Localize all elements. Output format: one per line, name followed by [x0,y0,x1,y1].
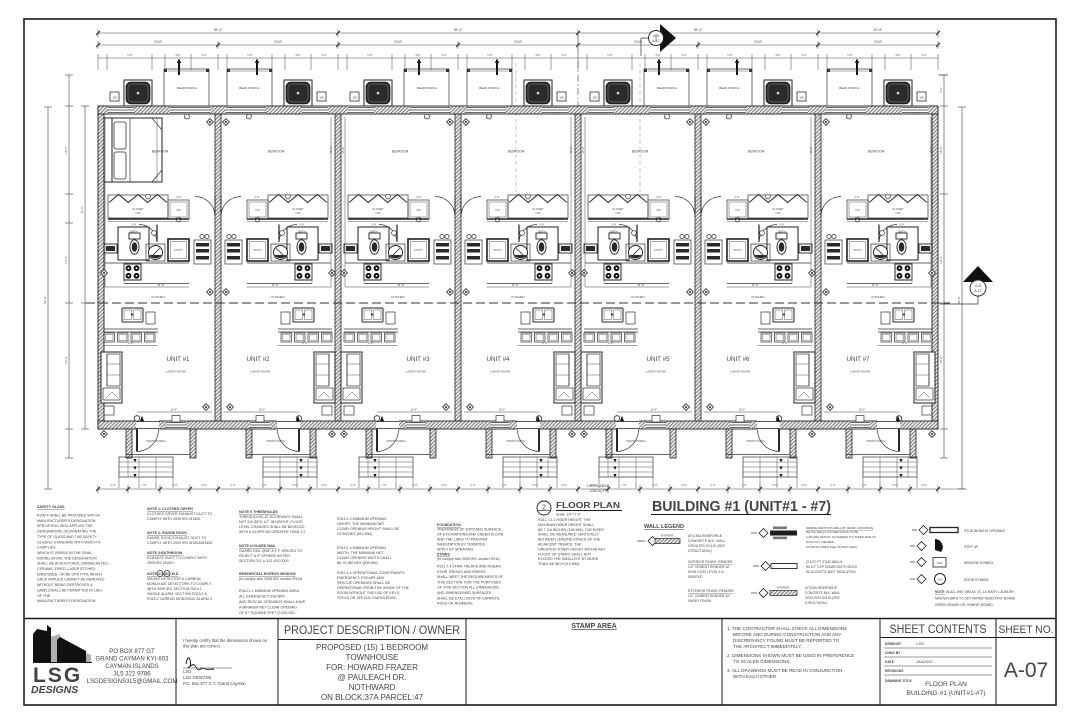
svg-text:A MINIMUM NET CLEAR OPENING: A MINIMUM NET CLEAR OPENING [239,606,297,610]
svg-text:BLOCK WALLS POURED SOLID TO BE: BLOCK WALLS POURED SOLID TO BE [806,530,858,534]
svg-text:REJECT A 4" SPHERE AS PER: REJECT A 4" SPHERE AS PER [239,554,290,558]
svg-text:CLOTHES DRYER EXHAUST DUCT TO: CLOTHES DRYER EXHAUST DUCT TO [147,512,212,516]
svg-text:SHALL BE ACID ETCHED, SANDBLAS: SHALL BE ACID ETCHED, SANDBLASTED, [37,562,109,566]
svg-text:19'-8": 19'-8" [514,40,522,44]
svg-text:BEDROOM: BEDROOM [508,150,525,154]
svg-text:2'-6": 2'-6" [735,196,740,199]
svg-text:THIS SECTION. FOR THE PURPOSES: THIS SECTION. FOR THE PURPOSES [437,580,501,584]
svg-text:WALL LEGEND: WALL LEGEND [644,524,684,530]
svg-text:11'-6": 11'-6" [872,283,879,287]
svg-text:LIVING ROOM: LIVING ROOM [730,370,751,374]
svg-text:5'-8": 5'-8" [780,224,785,227]
svg-text:R311.7.4.1 RISER HEIGHT. THE: R311.7.4.1 RISER HEIGHT. THE [538,518,591,522]
svg-text:RANGE HOOD EXHAUST DUCT TO: RANGE HOOD EXHAUST DUCT TO [147,536,206,540]
svg-text:24 INCHES (610 MM).: 24 INCHES (610 MM). [337,532,373,536]
svg-text:4'-4": 4'-4" [201,483,206,487]
svg-text:(4")CMU REINFORCE: (4")CMU REINFORCE [805,586,837,590]
svg-text:ON BLOCK:37A PARCEL:47: ON BLOCK:37A PARCEL:47 [321,693,424,702]
svg-text:A-B: A-B [975,284,981,288]
svg-text:5'-8": 5'-8" [132,224,137,227]
svg-text:BE 20 INCHES (508 MM).: BE 20 INCHES (508 MM). [337,561,379,565]
svg-text:CLEAR OPENING HEIGHT SHALL BE: CLEAR OPENING HEIGHT SHALL BE [337,527,400,531]
svg-text:PO BOX 877 GT: PO BOX 877 GT [109,648,155,655]
svg-text:UTILITY: UTILITY [733,250,742,252]
svg-text:15'-6": 15'-6" [259,408,266,412]
svg-text:UNIT #3: UNIT #3 [407,356,430,363]
svg-text:11'-6": 11'-6" [638,283,645,287]
svg-text:KITCHEN: KITCHEN [511,295,524,299]
svg-text:STAMP AREA: STAMP AREA [571,623,616,630]
svg-text:KITCHEN: KITCHEN [391,295,404,299]
svg-text:3'-6": 3'-6" [535,53,540,57]
svg-text:108: 108 [352,96,357,100]
svg-text:5'-6": 5'-6" [127,53,132,57]
svg-text:UTILITY: UTILITY [493,250,502,252]
svg-text:CERAMIC-FIRED, LASER ETCHED,: CERAMIC-FIRED, LASER ETCHED, [37,567,96,571]
svg-text:REAR PORCH: REAR PORCH [839,86,859,90]
svg-text:AND RESCUE OPENINGS SHALL HAVE: AND RESCUE OPENINGS SHALL HAVE [239,600,306,604]
svg-text:DOOR SYMBOL: DOOR SYMBOL [964,578,989,582]
svg-text:THE ARCHITECT IMMEDIATELY.: THE ARCHITECT IMMEDIATELY. [733,644,802,649]
svg-text:COMPLY WITH 2009 IRC M1502.: COMPLY WITH 2009 IRC M1502. [147,517,201,521]
svg-text:THRESHOLDS AT DOORWAYS SHALL: THRESHOLDS AT DOORWAYS SHALL [239,515,303,519]
svg-text:(8")CMU REINFORCE: (8")CMU REINFORCE [688,534,723,538]
svg-text:108: 108 [319,96,324,100]
svg-text:FRONT PORCH: FRONT PORCH [267,439,286,443]
svg-text:LSG: LSG [916,641,924,646]
svg-text:CLOSET: CLOSET [372,207,383,211]
svg-text:DRWN BY: DRWN BY [885,642,902,646]
svg-text:15'-6": 15'-6" [939,356,943,364]
svg-text:STRUCTURAL): STRUCTURAL) [805,601,828,605]
svg-text:LABEL(SHALL BE PERMITTED IN LI: LABEL(SHALL BE PERMITTED IN LIEU [37,588,102,592]
svg-text:ALL EMERGENCY ESCAPE: ALL EMERGENCY ESCAPE [239,595,286,599]
svg-text:11'-6": 11'-6" [158,283,165,287]
svg-text:INTERIOR: INTERIOR [661,534,674,538]
svg-text:ROOF PLY, RENDER: ROOF PLY, RENDER [806,540,834,544]
svg-text:GUARD RAIL @36" A.F.F. SPACED: GUARD RAIL @36" A.F.F. SPACED TO [239,549,302,553]
svg-text:LEVEL CHANGES SHALL BE BEVELED: LEVEL CHANGES SHALL BE BEVELED [239,525,305,529]
svg-text:CLOSET: CLOSET [532,207,543,211]
svg-text:3'-6": 3'-6" [295,53,300,57]
svg-text:15'-6": 15'-6" [411,408,418,412]
svg-text:A-17: A-17 [974,289,981,293]
svg-text:SAFETY GLASS: SAFETY GLASS [37,505,65,509]
svg-text:BEDROOM: BEDROOM [152,150,169,154]
svg-text:FRONT PORCH: FRONT PORCH [507,439,526,443]
svg-text:3. ALL DRAWINGS MUST BE READ: 3. ALL DRAWINGS MUST BE READ IN CONJUNCT… [727,668,842,673]
svg-text:W/ 1/2" GYP. BOARD BOTH SIDES: W/ 1/2" GYP. BOARD BOTH SIDES [806,565,857,569]
svg-text:3'-6": 3'-6" [775,53,780,57]
svg-text:this plan are correct.: this plan are correct. [183,644,221,649]
svg-text:LIN: LIN [855,208,859,212]
svg-text:39'-4": 39'-4" [214,28,223,32]
svg-text:WHICH IS VISIBLE IN THE FINAL: WHICH IS VISIBLE IN THE FINAL [37,551,92,555]
svg-text:SMOKE ALARM. SECTION R315.1 &: SMOKE ALARM. SECTION R315.1 & [147,592,208,596]
svg-text:OPERATIONAL FROM THE INSIDE OF: OPERATIONAL FROM THE INSIDE OF THE [337,586,410,590]
svg-text:1HR FIRE RATING, EXTENDED TO U: 1HR FIRE RATING, EXTENDED TO UNDER SIDE … [806,535,876,539]
svg-text:INTERIOR: INTERIOR [777,586,790,590]
svg-text:SHEET CONTENTS: SHEET CONTENTS [890,624,987,636]
svg-text:UNIT #1: UNIT #1 [167,356,190,363]
svg-text:UNIT #6: UNIT #6 [727,356,750,363]
svg-text:OF EXCAVATIONS AND UNDER FLOOR: OF EXCAVATIONS AND UNDER FLOOR [437,533,504,537]
svg-text:52'-0": 52'-0" [957,296,961,304]
svg-text:8'-4": 8'-4" [302,341,307,345]
svg-text:5'-2": 5'-2" [172,483,177,487]
svg-text:CONCRETE BLK. WALL: CONCRETE BLK. WALL [805,591,840,595]
svg-text:SPECIFYING WHO APPLIED THE: SPECIFYING WHO APPLIED THE [37,524,93,528]
svg-text:BEDROOM: BEDROOM [392,150,409,154]
svg-text:P.O. Box 877 G.T. Grand Cayma: P.O. Box 877 G.T. Grand Cayman [183,681,246,686]
svg-text:15'-6": 15'-6" [341,146,345,153]
svg-text:15'-6": 15'-6" [581,146,585,153]
svg-text:15'-6": 15'-6" [64,356,68,364]
svg-text:FOUNDATION: FOUNDATION [437,523,461,527]
svg-text:5'-8": 5'-8" [612,224,617,227]
svg-text:3'-2": 3'-2" [201,53,206,57]
svg-text:1/2" CEMENT RENDER W/: 1/2" CEMENT RENDER W/ [688,565,730,569]
svg-text:DRAWING TITLE: DRAWING TITLE [885,679,912,683]
svg-text:CLOSET: CLOSET [292,207,303,211]
svg-text:108: 108 [559,96,564,100]
svg-text:5'x3': 5'x3' [775,211,781,215]
svg-text:8'-4": 8'-4" [128,341,133,345]
svg-text:APPLY BY SPRAYING.: APPLY BY SPRAYING. [437,548,474,552]
svg-text:108: 108 [592,96,597,100]
svg-text:LIVING ROOM: LIVING ROOM [250,370,271,374]
svg-text:LIVING ROOM: LIVING ROOM [406,370,427,374]
svg-text:LIN: LIN [255,208,259,212]
svg-text:4'-4": 4'-4" [681,483,686,487]
svg-text:EXHAUST DUCT TO COMPLY WITH: EXHAUST DUCT TO COMPLY WITH [147,556,207,560]
svg-text:NOTE 5 THRESHOLDS: NOTE 5 THRESHOLDS [239,510,278,514]
svg-text:LIVING ROOM: LIVING ROOM [646,370,667,374]
svg-text:WINDOW SYMBOL: WINDOW SYMBOL [964,561,994,565]
svg-text:DESIGNS: DESIGNS [31,684,78,696]
svg-text:4'-4": 4'-4" [801,483,806,487]
svg-text:ONCE APPLIED CANNOT BE REMOVED: ONCE APPLIED CANNOT BE REMOVED [37,578,105,582]
svg-text:GLAZING STANDARD WITH WHICH IT: GLAZING STANDARD WITH WHICH IT [37,540,102,544]
svg-text:FRONT PORCH: FRONT PORCH [387,439,406,443]
svg-text:19'-8": 19'-8" [394,40,402,44]
svg-text:15'-6": 15'-6" [101,146,105,153]
svg-text:BEDROOM: BEDROOM [868,150,885,154]
svg-text:R308.4 SHALL BE PROVIDED WITH: R308.4 SHALL BE PROVIDED WITH A [37,514,100,518]
svg-text:MAXIMUM RISER HEIGHT SHALL: MAXIMUM RISER HEIGHT SHALL [538,523,594,527]
svg-text:5'-2": 5'-2" [772,483,777,487]
svg-text:3'-2": 3'-2" [561,53,566,57]
svg-text:5'-8": 5'-8" [540,224,545,227]
svg-text:TOOLS OR SPECIAL KNOWLEDGE.: TOOLS OR SPECIAL KNOWLEDGE. [337,596,397,600]
svg-text:KITCHEN: KITCHEN [271,295,284,299]
svg-text:2'-4": 2'-4" [830,483,835,487]
svg-text:INFESTATION BY TERMITES.: INFESTATION BY TERMITES. [437,543,486,547]
svg-text:15'-6": 15'-6" [499,408,506,412]
svg-text:UTILITY: UTILITY [654,250,663,252]
svg-text:DISCREPANCY FOUND MUST BE REPO: DISCREPANCY FOUND MUST BE REPORTED TO [733,638,840,643]
svg-text:R311.7.4 STAIR TREADS AND RISE: R311.7.4 STAIR TREADS AND RISERS [437,565,502,569]
svg-text:1. THE CONTRACTOR SHALL CHECK: 1. THE CONTRACTOR SHALL CHECK ALL DIMENS… [727,626,847,631]
svg-text:2'-4": 2'-4" [350,483,355,487]
svg-text:TREATMENT OF EXPOSED SURFACE: TREATMENT OF EXPOSED SURFACE [437,528,502,532]
svg-text:REAR PORCH: REAR PORCH [657,86,677,90]
svg-text:A-07: A-07 [1004,659,1048,682]
svg-text:REVISIONS: REVISIONS [885,669,904,673]
svg-text:LSG: LSG [183,669,191,674]
svg-text:GROUTED SOLID (SEE: GROUTED SOLID (SEE [805,596,840,600]
svg-text:2'-6": 2'-6" [495,196,500,199]
svg-text:OF THE: OF THE [37,594,51,598]
svg-text:BE 7 3/4 INCHES (196 MM). THE: BE 7 3/4 INCHES (196 MM). THE RISER [538,528,604,532]
svg-text:CAYMAN ISLANDS: CAYMAN ISLANDS [105,663,158,670]
svg-text:FRONT PORCH: FRONT PORCH [867,439,886,443]
svg-text:MONOXIDE DETECTORS TO COMPLY: MONOXIDE DETECTORS TO COMPLY [147,582,212,586]
svg-text:SHALL MEET THE REQUIREMENTS OF: SHALL MEET THE REQUIREMENTS OF [437,575,504,579]
svg-text:BEDROOM: BEDROOM [748,150,765,154]
svg-text:WIDTH. THE MINIMUM NET: WIDTH. THE MINIMUM NET [337,551,384,555]
svg-text:108: 108 [112,96,117,100]
svg-text:WITH 2009 IRC SECTION R314.1: WITH 2009 IRC SECTION R314.1 [147,587,202,591]
svg-text:STAIRS: STAIRS [437,553,451,557]
svg-text:GROUTED SOLID (SEE: GROUTED SOLID (SEE [688,544,726,548]
svg-text:RESIDENTIAL EGRESS WINDOW: RESIDENTIAL EGRESS WINDOW [239,572,296,576]
svg-text:8'-4": 8'-4" [542,341,547,345]
svg-text:5'-8": 5'-8" [300,224,305,227]
svg-text:KITCHEN: KITCHEN [151,295,164,299]
svg-text:OF 5.7 SQUARE FEET (5.530 M2).: OF 5.7 SQUARE FEET (5.530 M2). [239,611,296,615]
svg-text:5'-6": 5'-6" [847,53,852,57]
svg-text:UNIT #7: UNIT #7 [847,356,870,363]
svg-text:@ PAULEACH DR.: @ PAULEACH DR. [338,673,407,682]
svg-text:19'-8": 19'-8" [754,40,762,44]
svg-text:5'-2": 5'-2" [892,483,897,487]
svg-text:UTILITY: UTILITY [253,250,262,252]
svg-text:3'-6": 3'-6" [655,53,660,57]
svg-text:KITCHEN: KITCHEN [631,295,644,299]
svg-text:2'-4": 2'-4" [710,483,715,487]
svg-text:SHEET NO.: SHEET NO. [999,624,1054,636]
svg-text:LIN: LIN [495,208,499,212]
svg-text:NOT EXCEED 1/2" IN HEIGHT. FLO: NOT EXCEED 1/2" IN HEIGHT. FLOOR [239,520,303,524]
svg-text:STEP UP: STEP UP [964,545,979,549]
svg-text:LIVING ROOM: LIVING ROOM [490,370,511,374]
svg-text:5'-2": 5'-2" [292,483,297,487]
svg-text:STRUCTURAL): STRUCTURAL) [688,549,712,553]
svg-text:PAREX FINISH: PAREX FINISH [688,599,712,603]
svg-text:GREEN BOARD OR CEMENT BOARD.: GREEN BOARD OR CEMENT BOARD. [935,603,994,607]
svg-text:FRONT PORCH: FRONT PORCH [627,439,646,443]
svg-text:SHALL BE EXCLUSIVE OF CARPETS,: SHALL BE EXCLUSIVE OF CARPETS, [437,596,500,600]
svg-text:CLOSET: CLOSET [132,207,143,211]
svg-text:TO SCALED DIMENSIONS.: TO SCALED DIMENSIONS. [733,659,791,664]
svg-text:7'-4": 7'-4" [141,483,146,487]
svg-text:5'x3': 5'x3' [615,211,621,215]
svg-text:JAN2020: JAN2020 [916,659,933,664]
svg-text:WITH A SLOPE NO GREATER THAN 1: WITH A SLOPE NO GREATER THAN 1:2 [239,530,305,534]
svg-text:4'-4": 4'-4" [561,483,566,487]
svg-text:FLOOR PLAN: FLOOR PLAN [556,501,620,510]
svg-text:MANUFACTURER'S DESIGNATION.: MANUFACTURER'S DESIGNATION. [37,599,97,603]
svg-text:UTILITY: UTILITY [174,250,183,252]
svg-text:11'-6": 11'-6" [752,283,759,287]
svg-text:3'-6": 3'-6" [175,53,180,57]
svg-text:11'-6": 11'-6" [272,283,279,287]
svg-text:11'-2": 11'-2" [80,206,84,213]
svg-text:BETWEEN LEADING EDGES OF THE: BETWEEN LEADING EDGES OF THE [538,538,601,542]
svg-text:7'-4": 7'-4" [501,483,506,487]
svg-text:15'-6": 15'-6" [64,146,68,154]
svg-text:5'-6": 5'-6" [727,53,732,57]
svg-text:UNIT #4: UNIT #4 [487,356,510,363]
svg-text:PROJECT DESCRIPTION / OWNER: PROJECT DESCRIPTION / OWNER [284,623,460,637]
svg-text:5'x3': 5'x3' [295,211,301,215]
svg-text:EMBOSSED, OR BE OFA TYPE WHICH: EMBOSSED, OR BE OFA TYPE WHICH [37,572,102,576]
svg-text:3'-2": 3'-2" [441,53,446,57]
svg-text:REAR PORCH: REAR PORCH [239,86,259,90]
svg-text:RESCUE OPENINGS SHALL BE: RESCUE OPENINGS SHALL BE [337,581,391,585]
svg-text:INTERIOR FINISH: RENDER: INTERIOR FINISH: RENDER [688,560,733,564]
svg-text:52'-0": 52'-0" [43,296,47,304]
svg-text:CHKD BY: CHKD BY [885,651,901,655]
svg-text:R310.1.1 MINIMUM OPENING AREA.: R310.1.1 MINIMUM OPENING AREA. [239,589,300,593]
svg-text:3'-2": 3'-2" [681,53,686,57]
svg-text:2009 IRC M1507.: 2009 IRC M1507. [147,561,175,565]
svg-text:2'-6": 2'-6" [255,196,260,199]
svg-text:CLOSET: CLOSET [772,207,783,211]
svg-text:7'-4": 7'-4" [261,483,266,487]
svg-text:5'-6": 5'-6" [367,53,372,57]
svg-text:2'-6": 2'-6" [855,196,860,199]
svg-text:5'x3': 5'x3' [375,211,381,215]
svg-text:2'-6": 2'-6" [417,196,422,199]
svg-text:15'-6": 15'-6" [859,408,866,412]
svg-text:19'-8": 19'-8" [274,40,282,44]
svg-text:TOWNHOUSE: TOWNHOUSE [346,653,399,662]
svg-text:2'-6": 2'-6" [657,196,662,199]
svg-text:SHALL BE MEASURED VERTICALLY: SHALL BE MEASURED VERTICALLY [538,533,600,537]
svg-text:3'-2": 3'-2" [321,53,326,57]
svg-text:3'-2": 3'-2" [921,53,926,57]
svg-text:LIVING ROOM: LIVING ROOM [850,370,871,374]
svg-text:STAIR TREADS AND RISERS: STAIR TREADS AND RISERS [437,570,486,574]
svg-text:2'-4": 2'-4" [470,483,475,487]
svg-text:FLOOR PLAN: FLOOR PLAN [925,681,967,688]
svg-text:13'-4": 13'-4" [939,256,943,264]
svg-text:(3 1/2") PT STUD WALLS: (3 1/2") PT STUD WALLS [806,560,842,564]
svg-text:DATE: DATE [885,660,895,664]
svg-text:7'-4": 7'-4" [381,483,386,487]
svg-text:8'-4": 8'-4" [368,341,373,345]
svg-text:LIN: LIN [416,208,420,212]
svg-text:4'-4": 4'-4" [921,483,926,487]
svg-text:NOTE:: NOTE: [935,590,945,594]
svg-text:5'x3': 5'x3' [535,211,541,215]
svg-text:IN ALL WET AREAS I.E. 1/2 BATH: IN ALL WET AREAS I.E. 1/2 BATH, LAUNDRY, [946,590,1015,594]
svg-text:3'-2": 3'-2" [801,53,806,57]
svg-text:15'-6": 15'-6" [739,408,746,412]
svg-text:Scale: 1/4"=1'-0": Scale: 1/4"=1'-0" [556,513,582,517]
svg-text:108: 108 [937,561,942,565]
svg-text:4'-4": 4'-4" [441,483,446,487]
svg-text:5'-6": 5'-6" [607,53,612,57]
svg-text:R315.2 CARBON MONOXIDE ALARM 3: R315.2 CARBON MONOXIDE ALARM 3 [147,597,212,601]
svg-text:15'-6": 15'-6" [651,408,658,412]
svg-text:OF THIS SECTION ALL DIMENSIONS: OF THIS SECTION ALL DIMENSIONS [437,586,500,590]
svg-text:NOTHWARD: NOTHWARD [349,683,396,692]
svg-text:SECTION 311 & 312 -IRC2009: SECTION 311 & 312 -IRC2009 [239,559,288,563]
svg-text:3'-6": 3'-6" [415,53,420,57]
svg-text:5'-8": 5'-8" [900,224,905,227]
svg-text:19'-8": 19'-8" [874,40,882,44]
svg-text:5'-2": 5'-2" [532,483,537,487]
svg-text:BEFORE AND DURING CONSTRUCTION: BEFORE AND DURING CONSTRUCTION AND ANY [733,632,841,637]
svg-text:UTILITY: UTILITY [414,250,423,252]
svg-text:GRAND CAYMAN KYI-II03: GRAND CAYMAN KYI-II03 [95,656,169,663]
svg-text:11'-6": 11'-6" [512,283,519,287]
svg-text:KITCHEN: KITCHEN [751,295,764,299]
svg-text:3L5 322 9786: 3L5 322 9786 [113,671,151,678]
svg-text:R315.1.3 MINIMUM OPENING: R315.1.3 MINIMUM OPENING [337,546,387,550]
svg-text:ADJACENT TREADS. THE: ADJACENT TREADS. THE [538,543,582,547]
svg-text:LIN: LIN [656,208,660,212]
svg-text:BUILDING #1 (UNIT#1-#7): BUILDING #1 (UNIT#1-#7) [907,690,986,697]
svg-text:REAR PORCH: REAR PORCH [417,86,437,90]
svg-text:PROPOSED (15) 1 BEDROOM: PROPOSED (15) 1 BEDROOM [316,643,428,652]
svg-text:MANUFACTURER'S DESIGNATION: MANUFACTURER'S DESIGNATION [37,519,96,523]
svg-text:2'-4": 2'-4" [110,483,115,487]
svg-text:5'-2": 5'-2" [412,483,417,487]
svg-text:ON BOTH SIDES (SEE STRUCTURAL): ON BOTH SIDES (SEE STRUCTURAL) [806,545,857,549]
svg-text:108: 108 [799,96,804,100]
svg-text:W/ ACOUSTIC BATT INSULATION.: W/ ACOUSTIC BATT INSULATION. [806,570,857,574]
svg-text:107: 107 [937,578,942,582]
svg-text:NOTE 1: CLOTHES DRYER: NOTE 1: CLOTHES DRYER [147,507,193,511]
svg-text:13'-4": 13'-4" [64,256,68,264]
svg-text:5'-2": 5'-2" [652,483,657,487]
svg-text:15'-6": 15'-6" [939,146,943,154]
svg-text:GREATEST RISER HEIGHT WITHIN A: GREATEST RISER HEIGHT WITHIN ANY [538,547,606,551]
svg-text:A-17: A-17 [652,39,659,43]
svg-text:COMPLIES.: COMPLIES. [37,546,57,550]
svg-text:19'-8": 19'-8" [154,40,162,44]
svg-text:8'-4": 8'-4" [902,341,907,345]
svg-text:REAR PORCH: REAR PORCH [719,86,739,90]
svg-text:LSGDESIGNS3L5@GMAIL.COM: LSGDESIGNS3L5@GMAIL.COM [87,678,178,685]
svg-text:COMPLY WITH 2009 IRC M1503/M15: COMPLY WITH 2009 IRC M1503/M1505. [147,541,213,545]
svg-text:11'-6": 11'-6" [398,283,405,287]
svg-text:(to comply with 2009 IRC secti: (to comply with 2009 IRC section R310) [239,577,302,581]
svg-text:39'-4": 39'-4" [454,28,463,32]
svg-text:EMERGENCY ESCAPE AND: EMERGENCY ESCAPE AND [337,576,384,580]
svg-text:FOR: HOWARD FRAZER: FOR: HOWARD FRAZER [326,663,418,672]
svg-text:STUD BEAM AT OPENING: STUD BEAM AT OPENING [964,529,1005,533]
svg-text:SKIM COAT LEVEL 5 &: SKIM COAT LEVEL 5 & [688,570,724,574]
svg-text:NOTE 6:GUARD RAIL: NOTE 6:GUARD RAIL [239,544,277,548]
svg-text:1/2" CEMENT RENDER W/: 1/2" CEMENT RENDER W/ [688,594,730,598]
svg-text:39'-4": 39'-4" [694,28,703,32]
svg-text:MASTER BATH TO GET WATER RESIS: MASTER BATH TO GET WATER RESISTANT BOARD [935,597,1016,601]
svg-text:R310.1.4 OPERATIONAL CONSTRAIN: R310.1.4 OPERATIONAL CONSTRAINTS. [337,571,406,575]
svg-text:5'-6": 5'-6" [247,53,252,57]
svg-text:FLIGHT OF STAIRS SHALL NOT: FLIGHT OF STAIRS SHALL NOT [538,552,592,556]
svg-text:8'-4": 8'-4" [608,341,613,345]
svg-text:BEDROOM: BEDROOM [632,150,649,154]
svg-text:TYPE OF GLASS AND THE SAFETY: TYPE OF GLASS AND THE SAFETY [37,535,97,539]
svg-text:FRONT PORCH: FRONT PORCH [147,439,166,443]
svg-text:7'-4": 7'-4" [741,483,746,487]
svg-text:RUGS OR RUNNERS.: RUGS OR RUNNERS. [437,602,474,606]
